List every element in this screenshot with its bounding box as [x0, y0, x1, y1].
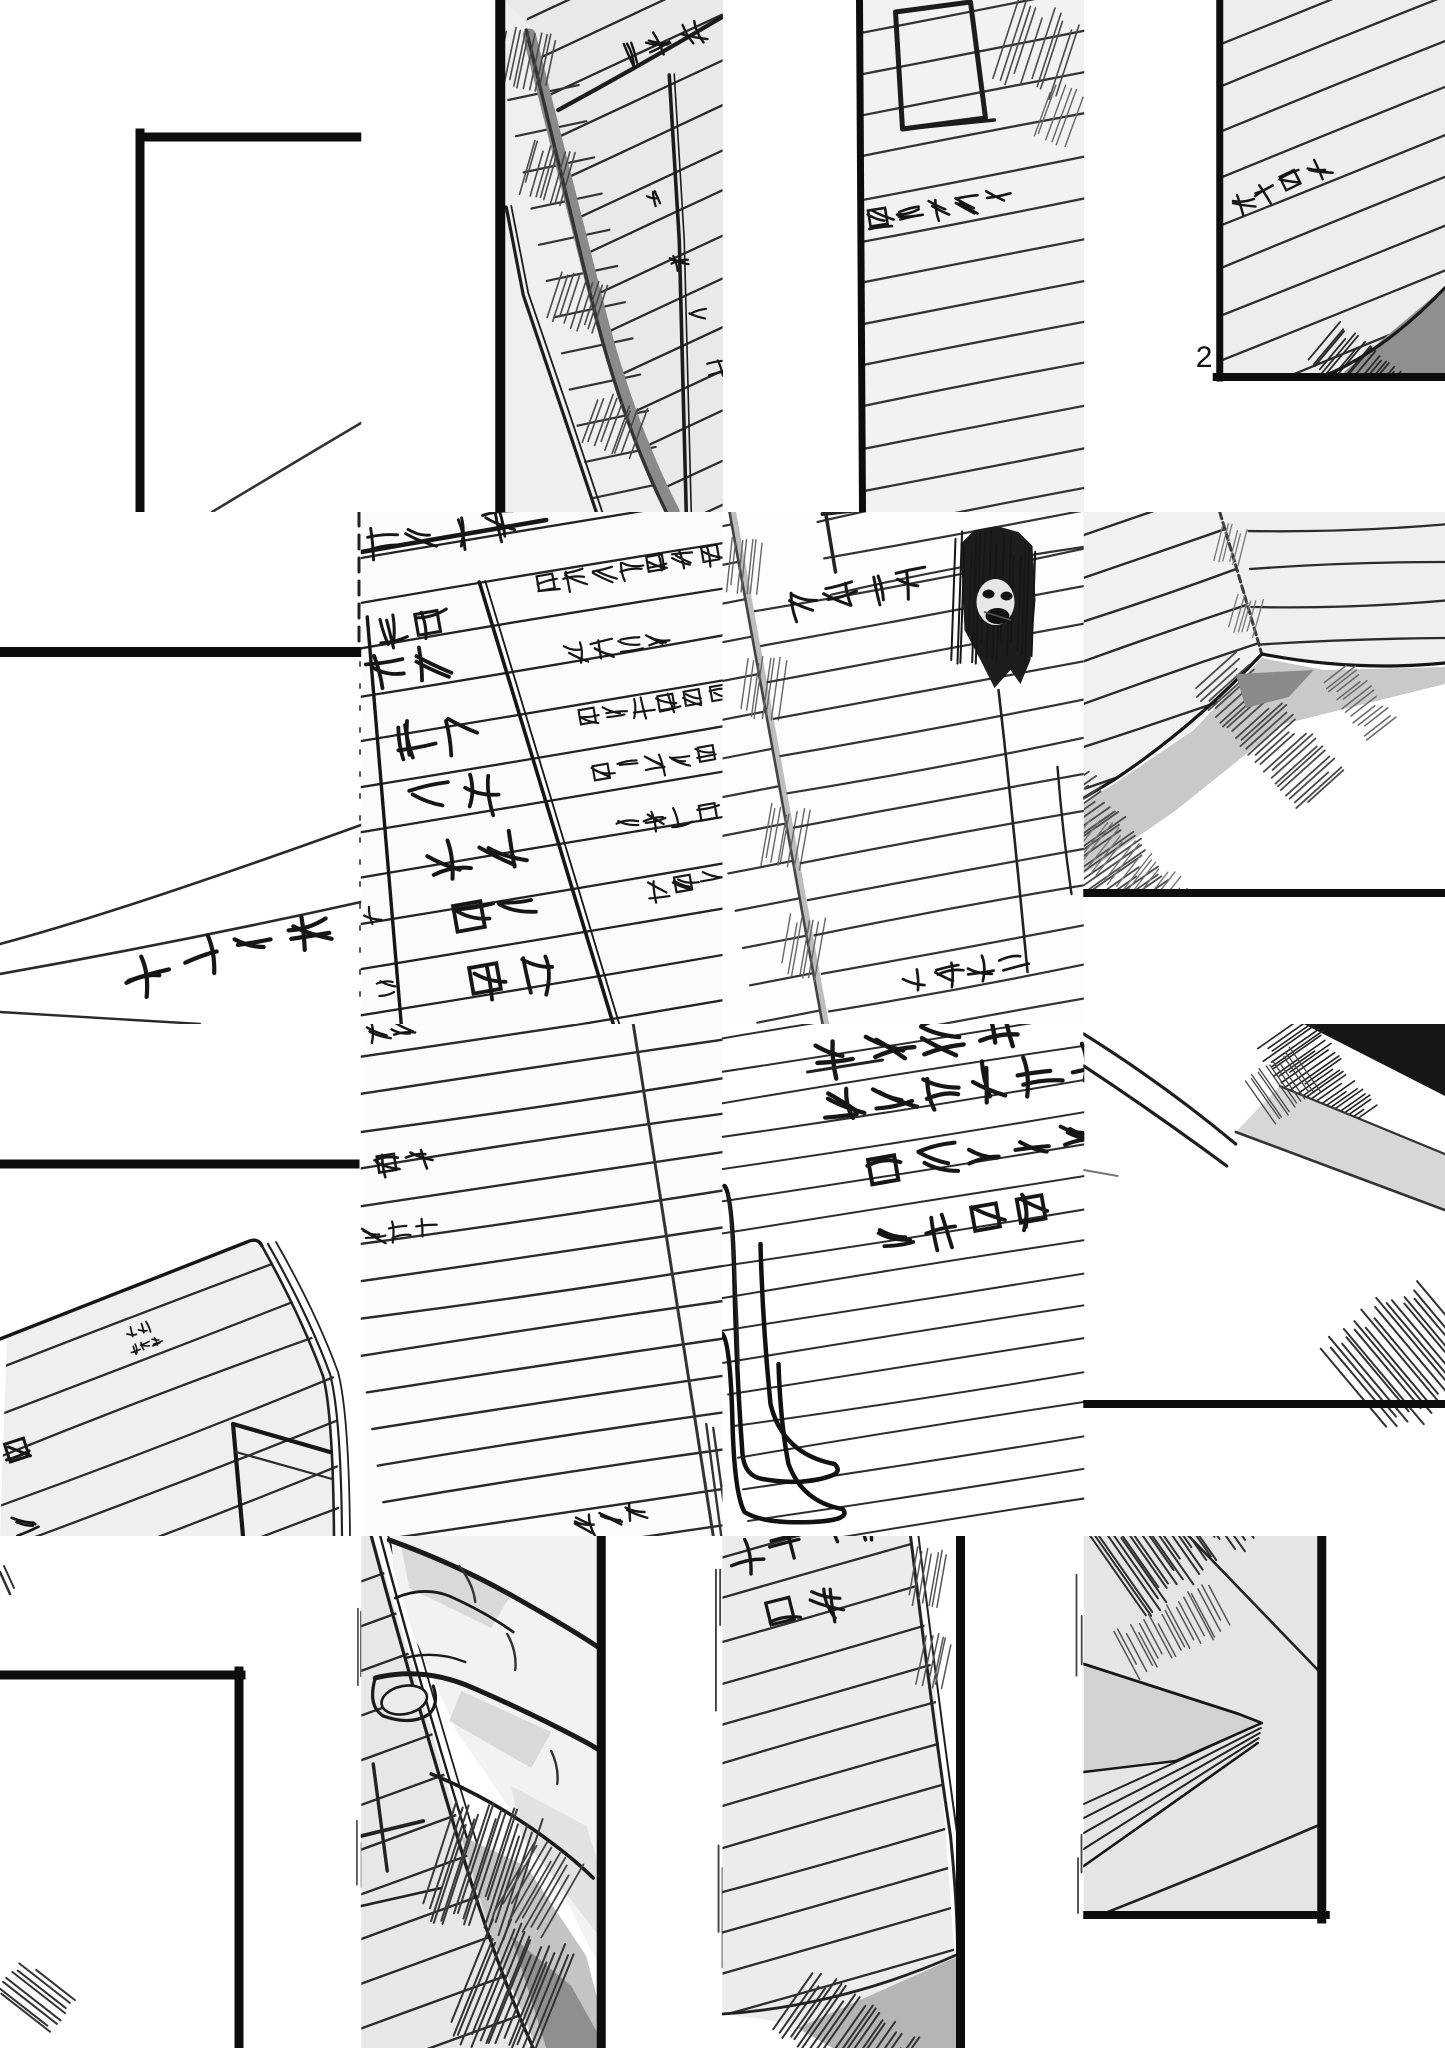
svg-text:2: 2	[1196, 341, 1213, 374]
